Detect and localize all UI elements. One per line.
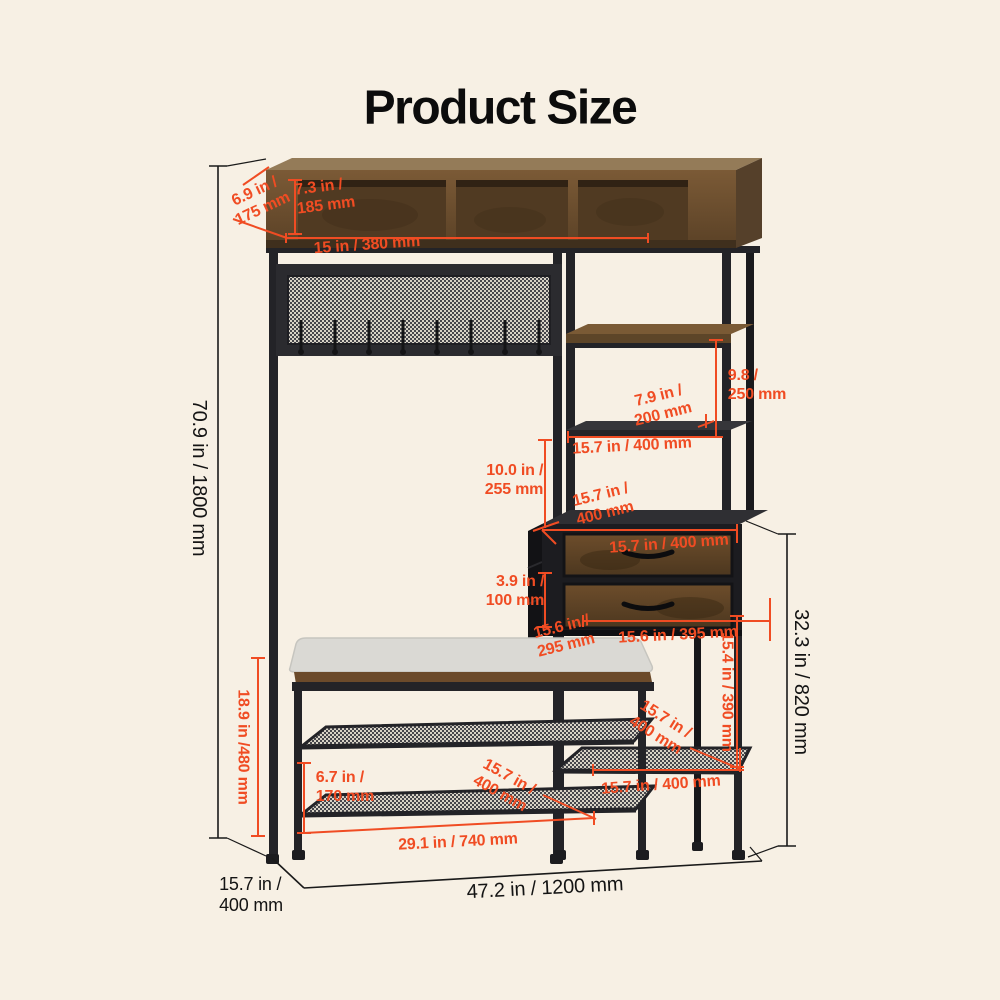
base-depth-label: 15.7 in / 400 mm — [219, 874, 283, 916]
tower-gap-height-label: 10.0 in / 255 mm — [485, 462, 543, 500]
shelf-spacing-label: 6.7 in / 170 mm — [316, 769, 374, 807]
bench-height-label: 18.9 in /480 mm — [233, 689, 252, 804]
side-tower-height-label: 32.3 in / 820 mm — [788, 609, 812, 755]
product-size-diagram: Product Size 6.9 in / 175 mm7.3 in / 185… — [0, 0, 1000, 1000]
drawer-base-height-label: 15.4 in / 390 mm — [717, 632, 736, 752]
drawer-height-label: 3.9 in / 100 mm — [486, 573, 544, 611]
total-height-label: 70.9 in / 1800 mm — [186, 400, 210, 557]
cubby-height-label: 7.3 in / 185 mm — [294, 175, 357, 220]
hook-panel — [276, 264, 562, 356]
upper-shelf-height-label: 9.8 / 250 mm — [728, 367, 786, 405]
page-title: Product Size — [364, 81, 637, 136]
